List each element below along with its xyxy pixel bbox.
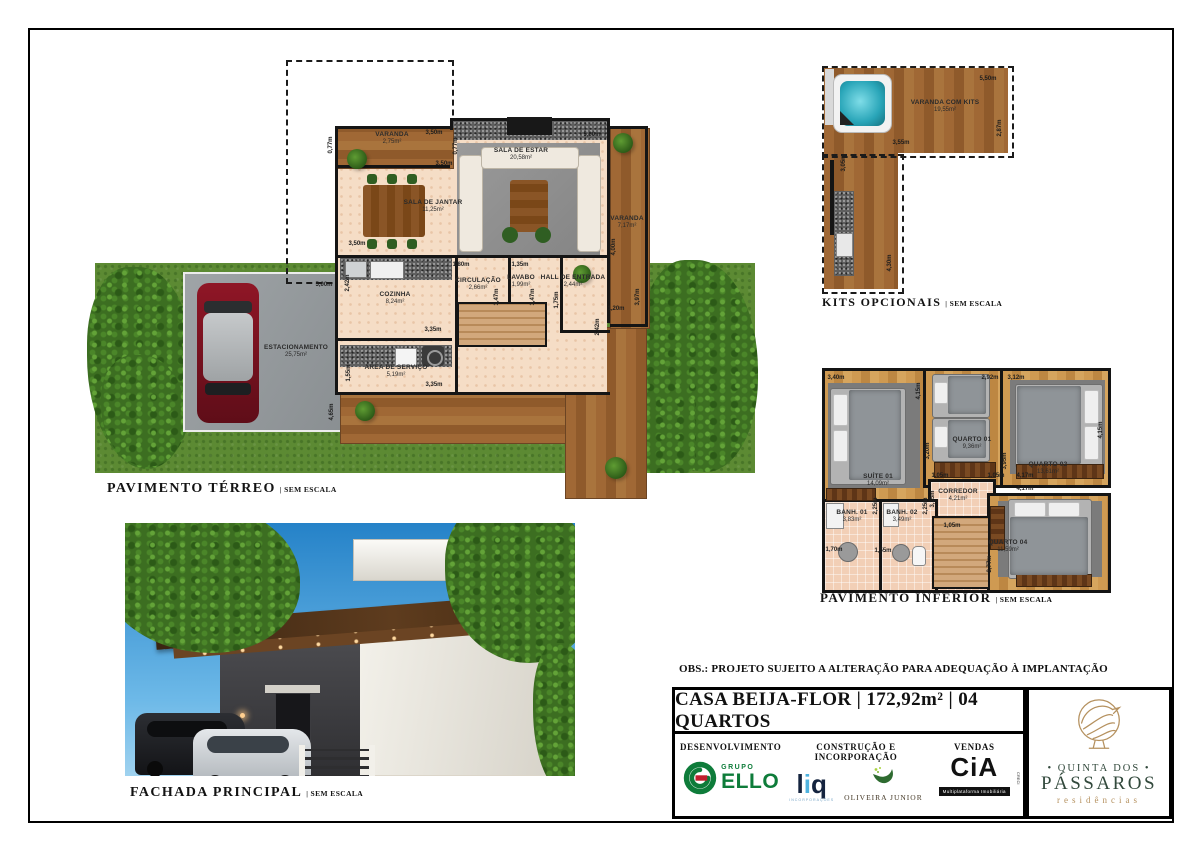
pillow — [934, 426, 948, 448]
wheel — [147, 761, 163, 776]
liq-q: q — [811, 769, 827, 799]
dim-label: 2,42m — [595, 318, 601, 335]
closet — [826, 488, 876, 501]
pouf — [502, 227, 518, 243]
stairs — [457, 302, 547, 347]
dining-chair — [407, 174, 417, 184]
dim-label: 3,35m — [930, 490, 936, 507]
wall — [645, 126, 648, 327]
car-roof — [203, 313, 253, 381]
pillow — [1048, 502, 1080, 517]
liq-l: l — [797, 769, 804, 799]
dim-label: 1,47m — [530, 288, 536, 305]
brand-line3: residências — [1029, 795, 1169, 805]
dim-label: 3,35m — [425, 382, 442, 388]
plan-sheet: VARANDA2,75m² SALA DE ESTAR20,58m² SALA … — [0, 0, 1200, 849]
room-label: ESTACIONAMENTO25,75m² — [264, 344, 328, 360]
dim-label: 3,97m — [635, 288, 641, 305]
oliveira-junior-logo: OLIVEIRA JUNIOR — [844, 766, 923, 802]
dim-label: 3,95m — [1002, 452, 1008, 469]
cia-creci: CRECI — [1016, 772, 1021, 784]
dim-label: 3,50m — [435, 161, 452, 167]
dim-label: 3,05m — [841, 154, 847, 171]
washer-door — [427, 350, 443, 366]
dim-label: 0,77m — [328, 136, 334, 153]
door-canopy — [265, 685, 320, 693]
pillow — [833, 430, 848, 462]
tv-panel — [507, 117, 552, 135]
pillow — [1084, 426, 1099, 460]
dim-label: 4,15m — [1098, 421, 1104, 438]
dim-label: 4,17m — [1016, 473, 1033, 479]
dim-label: 1,20m — [607, 306, 624, 312]
dim-label: 4,17m — [1016, 486, 1033, 492]
dining-chair — [387, 174, 397, 184]
col-label: DESENVOLVIMENTO — [675, 742, 786, 752]
col-vendas: VENDAS CiA Multiplataforma Imobiliária C… — [926, 734, 1023, 819]
dim-label: 1,05m — [987, 473, 1004, 479]
wall — [450, 118, 453, 130]
col-desenvolvimento: DESENVOLVIMENTO GRUPO ELLO — [675, 734, 786, 819]
wheel — [277, 775, 293, 776]
dim-label: 2,77m — [987, 555, 993, 572]
dining-chair — [367, 239, 377, 249]
dim-label: 5,00m — [583, 132, 600, 138]
dining-chair — [407, 239, 417, 249]
logos-row: DESENVOLVIMENTO GRUPO ELLO CONSTRUÇÃO E … — [675, 734, 1023, 819]
blanket — [948, 376, 986, 414]
dining-chair — [387, 239, 397, 249]
dim-label: 2,42m — [345, 274, 351, 291]
room-label: VARANDA COM KITS19,55m² — [911, 99, 980, 115]
title-row: CASA BEIJA-FLOR | 172,92m² | 04 QUARTOS — [675, 690, 1023, 734]
car-rear-glass — [205, 383, 251, 395]
dim-label: 3,50m — [348, 241, 365, 247]
wall — [610, 126, 648, 129]
bird-logo-icon — [1070, 694, 1128, 756]
scale-note: | SEM ESCALA — [306, 789, 363, 798]
dim-label: 1,80m — [452, 262, 469, 268]
dim-label: 1,70m — [825, 547, 842, 553]
room-label: ÁREA DE SERVIÇO5,19m² — [365, 364, 428, 380]
obs-note: OBS.: PROJETO SUJEITO A ALTERAÇÃO PARA A… — [679, 663, 1108, 675]
oliveira-name: OLIVEIRA JUNIOR — [844, 793, 923, 802]
pillow — [934, 382, 948, 404]
dim-label: 3,50m — [425, 130, 442, 136]
dim-label: 2,92m — [981, 375, 998, 381]
fachada-render — [125, 523, 575, 776]
railing-post — [299, 745, 305, 776]
dim-label: 4,00m — [611, 238, 617, 255]
dim-label: 3,40m — [827, 375, 844, 381]
wall — [337, 338, 452, 341]
room-label: QUARTO 0213,61m² — [1029, 461, 1068, 477]
wood-deck — [340, 390, 587, 444]
wall — [335, 126, 338, 395]
blanket — [849, 390, 901, 480]
room-label: VARANDA2,75m² — [375, 131, 408, 147]
coffee-table — [510, 180, 548, 232]
blanket — [1017, 386, 1081, 464]
liq-i: i — [804, 769, 811, 799]
red-car — [197, 283, 259, 423]
dining-chair — [367, 174, 377, 184]
dim-label: 1,35m — [511, 262, 528, 268]
room-label: HALL DE ENTRADA2,44m² — [541, 274, 606, 290]
room-label: CORREDOR4,21m² — [938, 488, 978, 504]
dim-label: 1,05m — [943, 523, 960, 529]
dim-label: 0,77m — [453, 137, 459, 154]
plant — [347, 149, 367, 169]
room-label: LAVABO1,99m² — [507, 274, 535, 290]
scale-note: | SEM ESCALA — [995, 595, 1052, 604]
wheel — [207, 775, 223, 776]
dim-label: 2,25m — [873, 497, 879, 514]
scale-note: | SEM ESCALA — [280, 485, 337, 494]
wall — [560, 330, 610, 333]
brand-line2: PÁSSAROS — [1029, 774, 1169, 795]
dim-label: 3,20m — [925, 442, 931, 459]
ello-logo-icon — [682, 760, 718, 796]
dim-label: 1,47m — [494, 288, 500, 305]
cia-sub: Multiplataforma Imobiliária — [939, 787, 1010, 796]
brand-box: • QUINTA DOS • PÁSSAROS residências — [1026, 687, 1172, 819]
cia-name: CiA — [926, 754, 1023, 780]
scale-note: | SEM ESCALA — [945, 299, 1002, 308]
washer — [422, 346, 444, 366]
kit-outline-lower — [822, 154, 904, 294]
pouf — [535, 227, 551, 243]
shower-drain — [892, 544, 910, 562]
inferior-plan: SUÍTE 0114,09m² QUARTO 019,36m² QUARTO 0… — [820, 366, 1112, 592]
pillow — [1084, 390, 1099, 424]
dim-label: 2,87m — [997, 119, 1003, 136]
room-label: VARANDA7,17m² — [610, 215, 643, 231]
dim-label: 5,50m — [979, 76, 996, 82]
dim-label: 1,75m — [554, 291, 560, 308]
plant — [355, 401, 375, 421]
room-label: SALA DE ESTAR20,58m² — [494, 147, 548, 163]
foliage-right — [533, 643, 575, 776]
stairs — [932, 516, 990, 589]
fachada-caption: FACHADA PRINCIPAL| SEM ESCALA — [130, 785, 363, 801]
plant — [605, 457, 627, 479]
room-label: BANH. 013,83m² — [836, 509, 867, 525]
title-block: CASA BEIJA-FLOR | 172,92m² | 04 QUARTOS … — [672, 687, 1026, 819]
foliage-top-left — [125, 523, 300, 653]
dim-label: 4,65m — [329, 403, 335, 420]
room-label: BANH. 023,49m² — [886, 509, 917, 525]
kits-caption: KITS OPCIONAIS| SEM ESCALA — [822, 295, 1002, 310]
room-label: COZINHA8,24m² — [379, 291, 410, 307]
liq-sub: INCORPORAÇÕES — [789, 798, 834, 802]
dim-label: 5,00m — [315, 282, 332, 288]
project-title: CASA BEIJA-FLOR | 172,92m² | 04 QUARTOS — [675, 689, 1023, 733]
dim-label: 4,30m — [887, 254, 893, 271]
wall — [335, 392, 610, 395]
dim-label: 2,25m — [923, 497, 929, 514]
plant — [613, 133, 633, 153]
col-construcao: CONSTRUÇÃO E INCORPORAÇÃO liq INCORPORAÇ… — [786, 734, 925, 819]
sofa-right — [577, 155, 601, 252]
dim-label: 1,05m — [931, 473, 948, 479]
room-label: SUÍTE 0114,09m² — [863, 473, 893, 489]
dim-label: 4,15m — [916, 382, 922, 399]
wall — [610, 324, 648, 327]
col-label: VENDAS — [926, 742, 1023, 752]
dim-label: 1,55m — [874, 548, 891, 554]
ello-logo: GRUPO ELLO — [675, 760, 786, 796]
kitchen-counter — [340, 258, 452, 280]
entry-railing — [303, 749, 373, 776]
room-label: SALA DE JANTAR11,25m² — [404, 199, 463, 215]
silver-car — [193, 729, 311, 776]
dim-label: 1,55m — [346, 364, 352, 381]
room-label: QUARTO 019,36m² — [953, 436, 992, 452]
dim-label: 3,55m — [892, 140, 909, 146]
room-label: QUARTO 0411,59m² — [989, 539, 1028, 555]
dim-label: 3,35m — [424, 327, 441, 333]
stove — [370, 261, 404, 279]
pillow — [833, 394, 848, 426]
terreo-caption: PAVIMENTO TÉRREO| SEM ESCALA — [107, 481, 337, 497]
dresser — [1016, 574, 1092, 587]
kits-plan: VARANDA COM KITS19,55m² 5,50m 3,55m 2,87… — [820, 63, 1020, 295]
pillow — [1014, 502, 1046, 517]
wall — [335, 126, 450, 129]
inferior-caption: PAVIMENTO INFERIOR| SEM ESCALA — [820, 590, 1052, 606]
car-windshield — [204, 301, 252, 313]
dim-label: 3,12m — [1007, 375, 1024, 381]
wall — [830, 160, 834, 235]
liq-logo: liq INCORPORAÇÕES — [789, 773, 834, 802]
oliveira-junior-logo-icon — [870, 766, 896, 788]
toilet — [912, 546, 926, 566]
railing-post — [369, 745, 375, 776]
ello-name-text: ELLO — [721, 771, 779, 792]
car-windows — [207, 736, 289, 753]
cia-logo: CiA Multiplataforma Imobiliária — [926, 754, 1023, 798]
wall — [560, 255, 563, 333]
terreo-plan: VARANDA2,75m² SALA DE ESTAR20,58m² SALA … — [95, 55, 755, 480]
col-label: CONSTRUÇÃO E INCORPORAÇÃO — [786, 742, 925, 762]
